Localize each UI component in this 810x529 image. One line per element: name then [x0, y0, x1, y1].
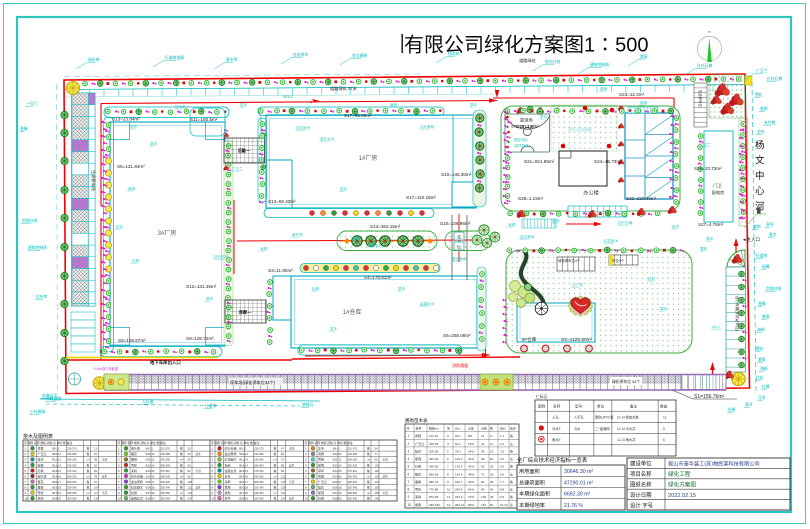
- svg-text:丛生: 丛生: [383, 474, 389, 478]
- svg-text:86: 86: [281, 463, 284, 467]
- svg-text:Φ15-17: Φ15-17: [239, 480, 249, 484]
- svg-text:设计日期: 设计日期: [630, 491, 652, 499]
- svg-text:2.2: 2.2: [500, 442, 505, 446]
- svg-text:W1.2: W1.2: [712, 325, 720, 329]
- svg-text:绿化方案图: 绿化方案图: [668, 480, 696, 488]
- svg-text:215-270: 215-270: [348, 447, 358, 451]
- svg-text:260-300: 260-300: [67, 463, 77, 467]
- svg-text:142: 142: [375, 480, 380, 484]
- svg-text:全冠: 全冠: [196, 469, 202, 473]
- svg-text:草坪: 草坪: [206, 296, 214, 301]
- svg-text:室外活动场地: 室外活动场地: [568, 126, 592, 132]
- svg-text:冠: 冠: [447, 426, 450, 430]
- svg-text:m²: m²: [180, 492, 183, 495]
- svg-text:建设单位: 建设单位: [630, 460, 652, 468]
- svg-text:办公楼: 办公楼: [583, 189, 599, 197]
- svg-text:(硬质铺装): (硬质铺装): [514, 143, 530, 148]
- svg-text:10: 10: [118, 497, 122, 501]
- svg-text:48%: 48%: [468, 472, 474, 476]
- svg-text:丛生: 丛生: [289, 497, 295, 501]
- svg-text:草坪: 草坪: [540, 114, 548, 119]
- svg-text:39: 39: [94, 458, 97, 462]
- svg-text:117: 117: [94, 491, 99, 495]
- svg-text:株: 株: [510, 494, 513, 499]
- svg-text:用地红线: 用地红线: [22, 218, 37, 223]
- svg-text:11-14 检查井盖: 11-14 检查井盖: [617, 415, 639, 420]
- svg-text:序: 序: [407, 425, 410, 430]
- svg-text:项目名称: 项目名称: [630, 470, 652, 478]
- svg-text:心: 心: [755, 186, 765, 197]
- svg-text:丛生: 丛生: [289, 463, 295, 467]
- svg-text:7.7: 7.7: [500, 480, 505, 484]
- svg-text:黄杨: 黄杨: [128, 186, 136, 191]
- svg-text:290-320: 290-320: [67, 474, 77, 478]
- svg-text:广玉兰: 广玉兰: [700, 142, 711, 147]
- svg-text:96: 96: [481, 488, 485, 492]
- svg-text:11-14 污水井: 11-14 污水井: [617, 426, 635, 431]
- svg-text:168: 168: [375, 491, 380, 495]
- svg-text:株: 株: [180, 497, 183, 501]
- svg-text:广玉兰: 广玉兰: [38, 451, 47, 456]
- svg-text:9.9: 9.9: [500, 495, 505, 499]
- svg-text:108: 108: [188, 480, 193, 484]
- svg-text:草坪: 草坪: [398, 286, 406, 291]
- svg-text:麦冬: 麦冬: [769, 232, 777, 237]
- svg-text:45: 45: [490, 495, 494, 499]
- svg-text:m²: m²: [274, 492, 277, 495]
- svg-text:桂花: 桂花: [116, 224, 124, 229]
- svg-text:S26=23.73m²: S26=23.73m²: [694, 166, 722, 171]
- svg-text:230-280: 230-280: [348, 452, 358, 456]
- svg-text:11: 11: [663, 416, 667, 420]
- svg-text:全冠: 全冠: [102, 458, 108, 462]
- svg-text:紫薇: 紫薇: [600, 86, 608, 91]
- svg-text:S13=23.84m²: S13=23.84m²: [112, 117, 140, 122]
- svg-text:Φ14-16: Φ14-16: [239, 474, 249, 478]
- svg-text:紫叶李: 紫叶李: [38, 473, 47, 478]
- svg-text:麦冬草: 麦冬草: [226, 57, 238, 62]
- svg-text:株: 株: [87, 469, 90, 473]
- svg-text:樱花: 樱花: [38, 479, 44, 484]
- svg-text:株: 株: [274, 469, 277, 473]
- svg-text:停车场(绿化停车位34个): 停车场(绿化停车位34个): [230, 379, 276, 386]
- svg-text:Φ12-14: Φ12-14: [239, 463, 249, 467]
- svg-text:Φ13-15: Φ13-15: [52, 469, 62, 473]
- svg-text:海桐: 海桐: [760, 366, 768, 371]
- svg-text:红花继木: 红花继木: [225, 457, 237, 462]
- svg-text:490.56: 490.56: [429, 465, 439, 469]
- svg-text:155: 155: [375, 485, 380, 489]
- svg-text:人手孔: 人手孔: [574, 415, 584, 420]
- svg-text:m²: m²: [180, 475, 183, 478]
- svg-text:129: 129: [375, 474, 380, 478]
- svg-text:红叶石楠: 红叶石楠: [618, 220, 633, 225]
- svg-text:紫荆: 紫荆: [415, 502, 421, 507]
- svg-text:335-350: 335-350: [348, 491, 358, 495]
- svg-text:型号: 型号: [575, 404, 583, 409]
- svg-text:Φ12-14: Φ12-14: [333, 463, 343, 467]
- svg-text:紫薇: 紫薇: [38, 462, 44, 467]
- svg-text:130: 130: [94, 497, 99, 501]
- svg-text:Φ17-19: Φ17-19: [239, 491, 249, 495]
- svg-text:300.36: 300.36: [429, 449, 439, 453]
- svg-text:47: 47: [281, 447, 284, 451]
- svg-text:290-320: 290-320: [348, 474, 358, 478]
- svg-text:序 图例 名称 规格 冠幅 高 单位 数 备注: 序 图例 名称 规格 冠幅 高 单位 数 备注: [305, 441, 353, 445]
- svg-text:桂花: 桂花: [340, 186, 348, 191]
- svg-text:数: 数: [490, 425, 493, 430]
- svg-text:S3=11.90m²: S3=11.90m²: [268, 268, 293, 273]
- svg-text:垂柳: 垂柳: [760, 106, 768, 111]
- svg-text:道路绿化: 道路绿化: [519, 57, 537, 64]
- svg-text:52: 52: [94, 463, 97, 467]
- svg-text:130.5: 130.5: [455, 465, 463, 469]
- svg-text:2: 2: [408, 442, 410, 446]
- svg-text:775.86: 775.86: [429, 488, 439, 492]
- svg-text:全冠: 全冠: [289, 447, 295, 451]
- svg-text:335-350: 335-350: [254, 491, 264, 495]
- svg-text:黄杨: 黄杨: [318, 457, 324, 462]
- svg-text:395.46: 395.46: [429, 457, 439, 461]
- svg-text:24%: 24%: [468, 449, 474, 453]
- svg-text:樱花: 樱花: [756, 346, 764, 351]
- svg-text:4: 4: [408, 457, 410, 461]
- svg-text:Φ12-14: Φ12-14: [146, 463, 156, 467]
- svg-text:Φ12-14: Φ12-14: [52, 463, 62, 467]
- svg-text:桂花: 桂花: [648, 276, 656, 281]
- svg-text:株: 株: [510, 479, 513, 484]
- svg-text:株: 株: [510, 448, 513, 453]
- svg-text:Φ11-13: Φ11-13: [239, 458, 248, 462]
- svg-text:株: 株: [274, 497, 277, 501]
- svg-text:82: 82: [188, 469, 191, 473]
- svg-text:12: 12: [481, 434, 485, 438]
- svg-text:株: 株: [367, 480, 370, 484]
- svg-text:320-340: 320-340: [254, 485, 264, 489]
- svg-text:海桐: 海桐: [757, 327, 765, 332]
- svg-text:40: 40: [490, 488, 494, 492]
- svg-text:麦冬: 麦冬: [672, 224, 680, 229]
- svg-text:103: 103: [375, 463, 380, 467]
- svg-text:+0.4m自行车坡道: +0.4m自行车坡道: [93, 366, 119, 371]
- svg-text:m²: m²: [87, 459, 90, 462]
- svg-text:栾树: 栾树: [131, 468, 137, 473]
- svg-text:Φ16-18: Φ16-18: [52, 485, 62, 489]
- svg-text:杜鹃: 杜鹃: [312, 286, 320, 291]
- svg-text:Φ9-11: Φ9-11: [146, 447, 154, 451]
- svg-text:广玉兰: 广玉兰: [318, 479, 327, 484]
- svg-text:垂柳: 垂柳: [38, 484, 44, 489]
- svg-text:350-360: 350-360: [254, 497, 264, 501]
- svg-text:樱花: 樱花: [131, 451, 137, 456]
- svg-text:全厂综合技术经济指标一览表: 全厂综合技术经济指标一览表: [517, 456, 588, 464]
- svg-text:234.9: 234.9: [455, 495, 463, 499]
- svg-text:21.76 %: 21.76 %: [564, 503, 583, 509]
- svg-text:110.16: 110.16: [429, 434, 438, 438]
- svg-text:车位4个: 车位4个: [612, 258, 625, 263]
- svg-text:通道绿化: 通道绿化: [367, 243, 382, 248]
- svg-text:Φ9-11: Φ9-11: [239, 447, 247, 451]
- svg-text:20: 20: [490, 457, 494, 461]
- svg-text:金森女贞: 金森女贞: [420, 301, 435, 306]
- svg-text:名称: 名称: [416, 425, 422, 430]
- svg-text:道路绿化 37米: 道路绿化 37米: [330, 85, 358, 92]
- svg-text:245-290: 245-290: [348, 458, 358, 462]
- svg-text:S17=110.19m²: S17=110.19m²: [406, 195, 436, 200]
- svg-text:3.3: 3.3: [500, 449, 505, 453]
- svg-text:配电房: 配电房: [712, 189, 725, 196]
- svg-text:红花继木: 红花继木: [131, 484, 143, 489]
- svg-text:S13=362.15m²: S13=362.15m²: [370, 224, 401, 229]
- svg-text:草坪: 草坪: [318, 468, 324, 473]
- svg-text:草坪: 草坪: [706, 236, 714, 241]
- svg-text:11: 11: [447, 495, 450, 499]
- svg-text:金森女贞: 金森女贞: [131, 496, 143, 501]
- svg-text:Φ18-20: Φ18-20: [239, 497, 249, 501]
- svg-text:污水T: 污水T: [552, 426, 561, 431]
- svg-text:m²: m²: [367, 492, 370, 495]
- svg-text:丛: 丛: [510, 487, 513, 492]
- svg-text:株: 株: [274, 485, 277, 489]
- svg-text:2022.02.15: 2022.02.15: [668, 493, 696, 499]
- svg-text:48: 48: [481, 457, 485, 461]
- svg-text:56: 56: [188, 458, 191, 462]
- svg-text:香樟: 香樟: [758, 301, 766, 306]
- svg-text:本期绿地率: 本期绿地率: [519, 501, 545, 509]
- svg-text:株: 株: [510, 433, 513, 438]
- svg-text:47290.01 m²: 47290.01 m²: [564, 480, 593, 486]
- svg-text:杜鹃: 杜鹃: [131, 490, 137, 495]
- svg-text:桂花: 桂花: [415, 448, 421, 453]
- svg-text:Φ16-18: Φ16-18: [333, 485, 343, 489]
- svg-text:245-290: 245-290: [67, 458, 77, 462]
- svg-text:3#仓库: 3#仓库: [522, 336, 537, 343]
- svg-text:260.10: 260.10: [455, 503, 465, 507]
- svg-text:连廊—: 连廊—: [239, 309, 252, 316]
- svg-text:紫叶李: 紫叶李: [292, 232, 303, 237]
- svg-text:垂柳: 垂柳: [415, 479, 421, 484]
- svg-text:株: 株: [274, 447, 277, 451]
- svg-text:塑胶场地: 塑胶场地: [514, 137, 528, 142]
- svg-text:红叶石楠: 红叶石楠: [225, 446, 237, 451]
- svg-text:230-280: 230-280: [161, 452, 171, 456]
- svg-text:182.7: 182.7: [455, 480, 463, 484]
- svg-text:一号门: 一号门: [26, 101, 38, 106]
- svg-text:香樟: 香樟: [38, 446, 44, 451]
- svg-text:24: 24: [481, 442, 485, 446]
- svg-text:Φ14-16: Φ14-16: [333, 474, 343, 478]
- svg-text:Φ14-16: Φ14-16: [146, 474, 156, 478]
- svg-text:245-290: 245-290: [254, 458, 264, 462]
- svg-text:151: 151: [281, 491, 286, 495]
- svg-text:15: 15: [490, 449, 494, 453]
- svg-text:230-280: 230-280: [254, 452, 264, 456]
- svg-text:156.6: 156.6: [455, 472, 463, 476]
- svg-text:紫薇: 紫薇: [762, 314, 770, 319]
- svg-text:株: 株: [180, 463, 183, 467]
- svg-text:10: 10: [490, 442, 494, 446]
- svg-text:黑色UPVC管: 黑色UPVC管: [595, 415, 613, 420]
- svg-text:Φ18-20: Φ18-20: [52, 497, 62, 501]
- svg-text:麦冬: 麦冬: [318, 446, 324, 451]
- svg-text:60: 60: [481, 465, 485, 469]
- svg-text:红花继木: 红花继木: [296, 125, 311, 130]
- svg-text:行道树: 行道树: [756, 253, 768, 258]
- svg-text:S11=160.5m²: S11=160.5m²: [190, 117, 218, 122]
- svg-text:147: 147: [188, 497, 193, 501]
- svg-text:红枫: 红枫: [762, 384, 770, 389]
- svg-text:栾树: 栾树: [38, 496, 44, 501]
- svg-text:52.2: 52.2: [455, 442, 461, 446]
- svg-text:备注: 备注: [510, 425, 516, 430]
- svg-text:Φ10-12: Φ10-12: [333, 452, 343, 456]
- svg-text:m²: m²: [274, 459, 277, 462]
- svg-text:m²: m²: [274, 475, 277, 478]
- svg-text:11-14 雨水井: 11-14 雨水井: [617, 437, 635, 442]
- svg-text:市政道路: 市政道路: [46, 396, 61, 401]
- svg-text:43: 43: [188, 452, 191, 456]
- svg-text:Φ13-15: Φ13-15: [333, 469, 343, 473]
- svg-text:广玉兰: 广玉兰: [415, 441, 424, 446]
- svg-text:S4=178.81m²: S4=178.81m²: [364, 275, 392, 280]
- svg-text:Φ11-13: Φ11-13: [52, 458, 61, 462]
- svg-text:305-330: 305-330: [161, 480, 171, 484]
- svg-text:8%: 8%: [468, 434, 473, 438]
- svg-text:S1=156.76m²: S1=156.76m²: [694, 394, 724, 400]
- svg-text:350-360: 350-360: [67, 497, 77, 501]
- svg-text:181: 181: [375, 497, 380, 501]
- svg-text:用地红线: 用地红线: [766, 286, 781, 291]
- svg-text:S22=220.46m²: S22=220.46m²: [626, 196, 657, 201]
- svg-text:Φ17-19: Φ17-19: [146, 491, 156, 495]
- svg-text:紫薇: 紫薇: [415, 456, 421, 461]
- svg-text:全冠: 全冠: [383, 458, 389, 462]
- svg-text:雪松: 雪松: [131, 462, 137, 467]
- svg-text:草坪: 草坪: [150, 141, 158, 146]
- svg-text:株: 株: [367, 485, 370, 489]
- svg-text:紫薇: 紫薇: [640, 100, 648, 105]
- svg-text:设计 字号: 设计 字号: [630, 501, 654, 509]
- svg-text:小叶黄杨: 小叶黄杨: [30, 409, 45, 414]
- svg-text:红枫: 红枫: [415, 464, 421, 469]
- svg-text:全冠: 全冠: [102, 491, 108, 495]
- svg-text:丛: 丛: [510, 502, 513, 507]
- svg-text:黄杨: 黄杨: [390, 102, 398, 107]
- svg-text:Φ11-13: Φ11-13: [333, 458, 342, 462]
- svg-text:草坪: 草坪: [470, 102, 478, 107]
- svg-text:S13=55.43m²: S13=55.43m²: [268, 199, 296, 204]
- svg-text:建筑控制线: 建筑控制线: [590, 62, 609, 67]
- svg-text:S8=108.67m²: S8=108.67m²: [118, 338, 146, 343]
- svg-text:Φ15-17: Φ15-17: [146, 480, 156, 484]
- svg-text:胸径cm: 胸径cm: [429, 425, 439, 430]
- svg-text:有限公司绿化方案图1∶500: 有限公司绿化方案图1∶500: [404, 34, 649, 57]
- svg-text:行道树: 行道树: [205, 403, 217, 408]
- svg-text:10: 10: [305, 497, 309, 501]
- svg-text:10: 10: [447, 488, 451, 492]
- svg-text:Φ13-15: Φ13-15: [146, 469, 156, 473]
- svg-text:地下车库出入口: 地下车库出入口: [150, 359, 181, 366]
- svg-text:生态停车场: 生态停车场: [90, 170, 97, 191]
- svg-text:S12=131.45m²: S12=131.45m²: [186, 284, 217, 289]
- svg-text:26.1: 26.1: [455, 434, 461, 438]
- svg-text:后勤—: 后勤—: [238, 147, 251, 154]
- svg-text:4.4: 4.4: [500, 457, 505, 461]
- svg-text:红叶石楠: 红叶石楠: [697, 63, 712, 68]
- svg-text:株: 株: [274, 480, 277, 484]
- svg-text:株: 株: [87, 485, 90, 489]
- svg-text:215-270: 215-270: [161, 447, 171, 451]
- svg-text:金桂: 金桂: [757, 129, 765, 134]
- svg-text:Φ18-20: Φ18-20: [146, 497, 156, 501]
- svg-text:112: 112: [281, 474, 286, 478]
- svg-text:株: 株: [180, 447, 183, 451]
- svg-text:Φ18-20: Φ18-20: [333, 497, 343, 501]
- svg-text:10: 10: [408, 503, 412, 507]
- svg-text:36: 36: [481, 449, 485, 453]
- svg-text:丛: 丛: [510, 471, 513, 476]
- svg-text:桂花: 桂花: [756, 375, 764, 380]
- svg-text:总建筑面积: 总建筑面积: [519, 478, 545, 486]
- svg-text:Φ15-17: Φ15-17: [333, 480, 343, 484]
- svg-text:杨: 杨: [755, 140, 765, 152]
- svg-text:73: 73: [281, 458, 284, 462]
- svg-text:文: 文: [755, 155, 765, 167]
- svg-text:数量: 数量: [660, 404, 668, 409]
- svg-text:Φ15-17: Φ15-17: [52, 480, 62, 484]
- svg-text:S5=131.84m²: S5=131.84m²: [117, 164, 145, 169]
- svg-text:二~级管网: 二~级管网: [595, 426, 610, 431]
- svg-text:广玉兰: 广玉兰: [756, 68, 768, 73]
- svg-text:篮球场: 篮球场: [520, 117, 533, 124]
- svg-text:1.1: 1.1: [500, 434, 505, 438]
- svg-text:金边黄杨: 金边黄杨: [131, 479, 143, 484]
- svg-text:株: 株: [367, 452, 370, 456]
- svg-text:垂柳: 垂柳: [131, 457, 137, 462]
- svg-text:绿化停车位4个: 绿化停车位4个: [558, 258, 581, 263]
- svg-text:桂花: 桂花: [318, 484, 324, 489]
- svg-text:m²: m²: [367, 475, 370, 478]
- svg-text:335-350: 335-350: [161, 491, 171, 495]
- svg-text:草坪: 草坪: [745, 402, 753, 407]
- svg-text:紫荆: 紫荆: [225, 490, 231, 495]
- svg-text:雪松: 雪松: [755, 92, 763, 97]
- svg-text:305-330: 305-330: [254, 480, 264, 484]
- svg-text:8.8: 8.8: [500, 488, 505, 492]
- svg-text:25: 25: [490, 465, 494, 469]
- svg-text:行道树香樟: 行道树香樟: [165, 55, 184, 60]
- svg-text:红叶李: 红叶李: [175, 104, 186, 109]
- svg-text:污水: 污水: [574, 426, 581, 431]
- svg-text:单价: 单价: [500, 425, 506, 430]
- svg-text:桂花: 桂花: [38, 457, 44, 462]
- svg-text:6662.30 m²: 6662.30 m²: [564, 492, 591, 498]
- svg-text:m²: m²: [367, 459, 370, 462]
- svg-text:株: 株: [180, 469, 183, 473]
- svg-text:绿化停车位 34个: 绿化停车位 34个: [612, 379, 640, 384]
- svg-text:金森女贞: 金森女贞: [225, 468, 237, 473]
- svg-text:90: 90: [375, 458, 378, 462]
- svg-text:Φ17-19: Φ17-19: [52, 491, 62, 495]
- svg-text:40%: 40%: [468, 465, 474, 469]
- svg-text:7: 7: [408, 480, 410, 484]
- svg-text:72%: 72%: [468, 495, 474, 499]
- svg-text:黄杨: 黄杨: [225, 484, 231, 489]
- svg-text:备注: 备注: [630, 404, 638, 409]
- svg-text:金边黄杨: 金边黄杨: [352, 53, 367, 58]
- svg-text:图例: 图例: [538, 404, 546, 409]
- svg-text:紫薇: 紫薇: [640, 54, 648, 59]
